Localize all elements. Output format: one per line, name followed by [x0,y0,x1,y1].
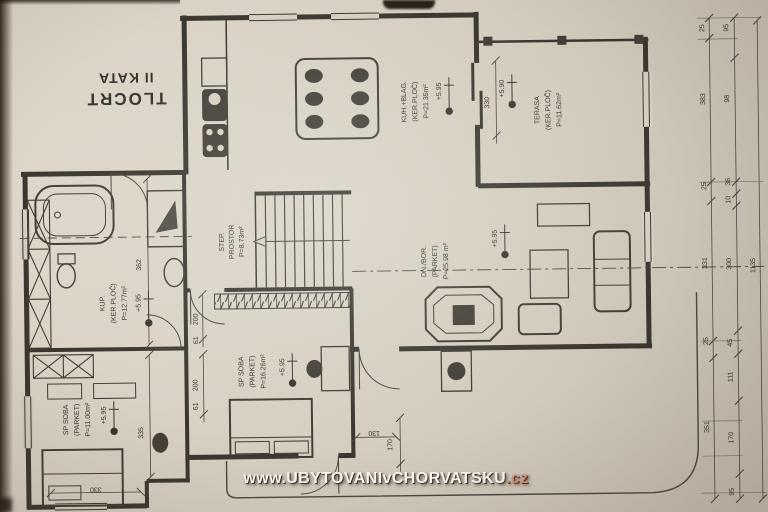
shower-unit [147,190,186,246]
svg-text:36: 36 [725,178,732,186]
floor-plan-photo: TLOCRT II KATA KUP. (KER.PLOČ) P=12.77m²… [0,0,768,512]
stairs [253,194,350,287]
svg-text:111: 111 [727,371,734,382]
svg-text:P=11.62m²: P=11.62m² [556,92,563,127]
elevation-marker-icon [143,291,153,326]
dimension-numbers-right: 25 383 25 331 25 351 95 98 36 10 300 45 … [699,23,760,496]
svg-text:P=16.26m²: P=16.26m² [260,354,267,389]
svg-text:P=8.73m²: P=8.73m² [239,226,246,257]
elevation-marker-icon [507,74,517,107]
bed-small [42,449,123,506]
svg-text:+5.95: +5.95 [492,230,499,248]
fireplace [425,287,502,342]
svg-text:+5.90: +5.90 [499,80,506,98]
svg-text:170: 170 [387,439,394,451]
kitchen-appliances [202,58,228,157]
svg-text:+5.95: +5.95 [135,294,142,312]
svg-text:P=21.35m²: P=21.35m² [423,84,430,119]
plan-title: TLOCRT II KATA [85,70,166,109]
svg-text:SP SOBA: SP SOBA [63,404,70,435]
svg-text:SP SOBA: SP SOBA [238,356,245,387]
svg-text:330: 330 [484,97,491,109]
svg-text:351: 351 [704,421,711,433]
svg-text:(PARKET): (PARKET) [432,245,439,277]
room-label-dnbor: DN./BOR. (PARKET) P=25.98 m² +5.95 [421,230,500,280]
elevation-marker-icon [287,353,297,386]
wardrobe-bottom [33,355,93,379]
svg-text:(KER.PLOČ): (KER.PLOČ) [543,90,552,130]
svg-text:(KER.PLOČ): (KER.PLOČ) [108,283,117,323]
washbasin [164,258,184,286]
svg-text:331: 331 [702,257,709,269]
svg-text:1135: 1135 [750,258,757,273]
svg-text:335: 335 [138,427,145,439]
title-line1: TLOCRT [85,89,166,109]
room-label-kuh: KUH.+BLAG. (KER.PLOČ) P=21.35m² +5.95 [401,80,444,122]
svg-text:P=11.00m²: P=11.00m² [85,402,92,437]
room-label-soba2: SP SOBA (PARKET) P=16.26m² +5.95 [238,353,286,389]
svg-text:P=25.98 m²: P=25.98 m² [443,242,450,279]
plan-sheet: TLOCRT II KATA KUP. (KER.PLOČ) P=12.77m²… [0,0,768,512]
bathtub [35,185,114,244]
svg-text:362: 362 [136,259,143,271]
elevation-marker-icon [500,224,510,257]
svg-text:25: 25 [703,337,710,345]
svg-text:25: 25 [701,182,708,190]
svg-text:95: 95 [729,488,736,496]
svg-text:95: 95 [723,24,730,32]
svg-text:200: 200 [193,313,200,325]
watermark-main: UBYTOVANIvCHORVATSKU [286,470,506,487]
svg-text:KUP.: KUP. [99,296,106,312]
svg-text:STEP.: STEP. [219,232,226,251]
desk-and-chair [306,346,350,391]
svg-text:200: 200 [192,379,199,391]
svg-text:KUH.+BLAG.: KUH.+BLAG. [401,81,409,123]
svg-text:98: 98 [724,95,731,103]
svg-text:61: 61 [193,336,200,344]
svg-text:+5.95: +5.95 [436,82,443,100]
svg-text:+5.95: +5.95 [279,358,286,376]
chair-near-bed [152,433,168,453]
watermark-url: www.UBYTOVANIvCHORVATSKU.cz [228,470,544,488]
svg-text:61: 61 [193,402,200,410]
svg-text:45: 45 [727,339,734,347]
svg-text:(KER.PLOČ): (KER.PLOČ) [410,82,419,122]
svg-text:P=12.77m²: P=12.77m² [121,285,128,320]
bed-double [230,399,313,458]
svg-text:170: 170 [728,432,735,444]
title-line2: II KATA [98,70,154,87]
svg-text:25: 25 [699,24,706,32]
svg-text:PROSTOR: PROSTOR [229,225,236,260]
svg-text:10: 10 [725,196,732,204]
room-label-kup: KUP. (KER.PLOČ) P=12.77m² +5.95 [99,283,142,324]
dining-table [296,58,379,139]
floor-plan-drawing: TLOCRT II KATA KUP. (KER.PLOČ) P=12.77m²… [0,0,768,512]
svg-text:TERASA: TERASA [534,96,541,124]
toilet [57,254,75,288]
sofa-set [517,203,631,334]
watermark-tld: .cz [506,470,529,487]
svg-text:(PARKET): (PARKET) [249,355,256,387]
svg-text:130: 130 [368,429,380,436]
elevation-marker-icon [109,401,119,434]
room-label-step: STEP. PROSTOR P=8.73m² [219,224,246,259]
elevation-marker-icon [444,77,454,114]
svg-text:DN./BOR.: DN./BOR. [421,246,428,277]
balcony-table-chair [441,351,471,391]
room-label-soba1: SP SOBA (PARKET) P=11.00m² +5.95 [63,402,108,437]
svg-text:+5.95: +5.95 [101,406,108,424]
svg-text:(PARKET): (PARKET) [74,404,81,436]
watermark-prefix: www. [243,470,286,487]
dressers [48,383,136,399]
svg-text:383: 383 [700,93,707,105]
wardrobe-hatch [214,292,352,309]
svg-text:330: 330 [90,485,102,492]
svg-text:300: 300 [726,258,733,270]
wardrobe-left [27,200,51,348]
